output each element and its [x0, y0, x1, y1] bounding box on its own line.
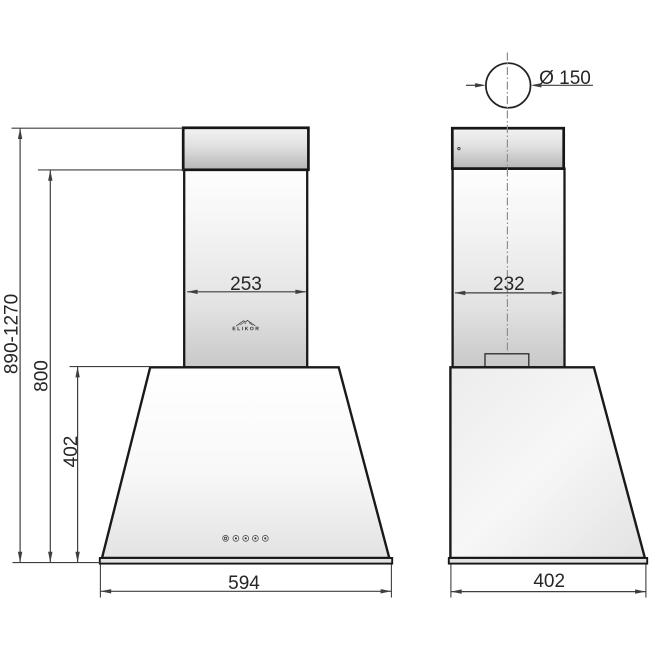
svg-text:800: 800 [32, 360, 53, 392]
svg-text:253: 253 [230, 274, 262, 295]
svg-text:890-1270: 890-1270 [2, 294, 23, 374]
svg-text:594: 594 [228, 573, 260, 594]
svg-text:Ø 150: Ø 150 [539, 68, 591, 89]
svg-text:232: 232 [493, 274, 525, 295]
svg-text:402: 402 [61, 436, 82, 468]
svg-text:402: 402 [533, 571, 565, 592]
